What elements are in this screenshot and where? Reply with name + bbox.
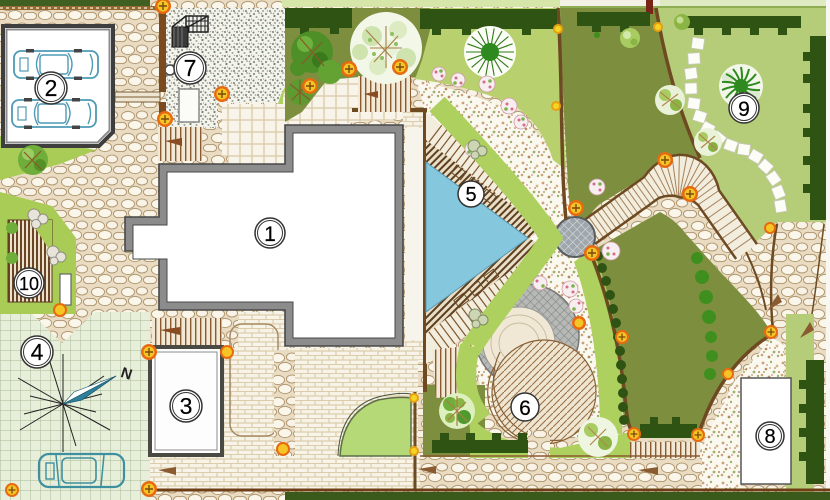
svg-text:10: 10 — [19, 274, 39, 294]
svg-text:3: 3 — [180, 393, 193, 419]
svg-text:8: 8 — [764, 426, 775, 448]
svg-text:4: 4 — [31, 339, 44, 365]
svg-text:7: 7 — [184, 55, 197, 81]
svg-text:6: 6 — [519, 397, 531, 420]
svg-text:9: 9 — [738, 98, 750, 121]
svg-text:5: 5 — [465, 184, 476, 206]
svg-text:1: 1 — [264, 223, 276, 246]
svg-text:2: 2 — [45, 75, 58, 101]
